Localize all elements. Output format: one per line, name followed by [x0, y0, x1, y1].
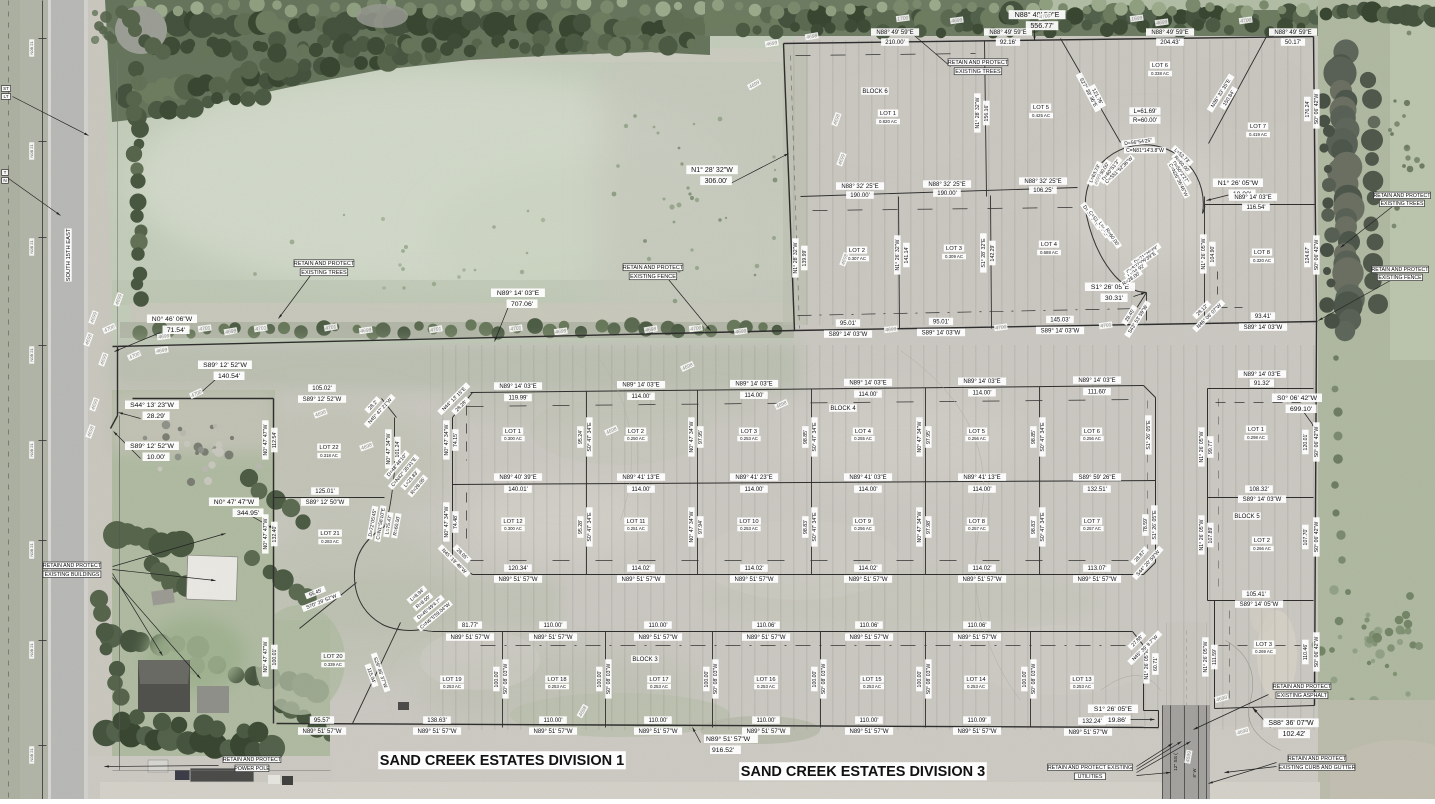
svg-text:LT: LT	[3, 94, 8, 99]
svg-text:125.01': 125.01'	[315, 489, 335, 495]
svg-text:LOT 5: LOT 5	[1033, 105, 1049, 111]
svg-text:N89° 51' 57"W: N89° 51' 57"W	[962, 577, 1001, 583]
svg-text:114.00': 114.00'	[858, 487, 877, 493]
svg-text:N89° 51' 57"W: N89° 51' 57"W	[450, 635, 489, 641]
svg-text:EXISTING FENCE: EXISTING FENCE	[1378, 275, 1422, 281]
svg-text:N0° 47' 34"W: N0° 47' 34"W	[917, 421, 923, 452]
svg-text:S89° 14' 03"W: S89° 14' 03"W	[1041, 328, 1080, 334]
svg-text:74.15': 74.15'	[453, 433, 459, 447]
svg-text:RETAIN AND PROTECT: RETAIN AND PROTECT	[623, 265, 684, 271]
svg-text:N89° 51' 57"W: N89° 51' 57"W	[302, 729, 341, 735]
svg-text:N1° 28' 32"W: N1° 28' 32"W	[793, 242, 799, 273]
svg-text:114.00': 114.00'	[744, 487, 763, 493]
svg-text:N0° 47' 47"W: N0° 47' 47"W	[263, 424, 269, 455]
svg-text:0.307 AC: 0.307 AC	[848, 256, 866, 261]
svg-text:138.63': 138.63'	[427, 718, 447, 724]
svg-text:124.67': 124.67'	[1305, 247, 1311, 264]
svg-text:EXISTING TREES: EXISTING TREES	[1381, 201, 1424, 207]
svg-text:RETAIN AND PROTECT: RETAIN AND PROTECT	[1374, 193, 1432, 199]
svg-text:110.06': 110.06'	[967, 623, 986, 629]
svg-text:LOT 6: LOT 6	[1152, 63, 1168, 69]
svg-text:0.253 AC: 0.253 AC	[1073, 684, 1091, 689]
svg-text:176.24': 176.24'	[1305, 101, 1311, 118]
svg-text:0.298 AC: 0.298 AC	[1247, 435, 1265, 440]
svg-text:102.42': 102.42'	[1283, 731, 1306, 738]
svg-text:LOT 11: LOT 11	[627, 519, 646, 525]
svg-text:LOT 13: LOT 13	[1072, 677, 1091, 683]
svg-text:LOT 14: LOT 14	[966, 677, 986, 683]
svg-text:N89° 14' 03"E: N89° 14' 03"E	[1078, 378, 1115, 384]
svg-text:S0° 08' 03"W: S0° 08' 03"W	[713, 664, 719, 695]
svg-text:LOT 22: LOT 22	[319, 445, 338, 451]
svg-text:POWER POLE: POWER POLE	[234, 766, 270, 772]
svg-text:N88° 49' 59"E: N88° 49' 59"E	[1151, 30, 1188, 36]
svg-text:0.256 AC: 0.256 AC	[968, 436, 986, 441]
svg-text:N0° 47' 47"W: N0° 47' 47"W	[214, 498, 255, 506]
svg-text:0.269 AC: 0.269 AC	[1255, 649, 1273, 654]
svg-text:0.256 AC: 0.256 AC	[854, 526, 872, 531]
svg-text:141.14': 141.14'	[904, 247, 910, 264]
svg-text:0.320 AC: 0.320 AC	[1253, 258, 1271, 263]
svg-text:210.00': 210.00'	[885, 40, 905, 46]
svg-text:EXISTING CURB AND GUTTER: EXISTING CURB AND GUTTER	[1279, 765, 1356, 771]
svg-text:N1° 26' 05"W: N1° 26' 05"W	[1201, 238, 1207, 269]
svg-text:N88° 49' 59"E: N88° 49' 59"E	[1274, 30, 1311, 36]
svg-text:N0° 47' 34"W: N0° 47' 34"W	[689, 421, 695, 452]
svg-text:N89° 41' 13"E: N89° 41' 13"E	[963, 475, 1000, 481]
svg-text:50.17': 50.17'	[1285, 40, 1301, 46]
svg-text:8" W: 8" W	[1192, 768, 1197, 777]
svg-text:30.31': 30.31'	[1105, 295, 1123, 302]
svg-text:LOT 10: LOT 10	[739, 519, 758, 525]
svg-text:556.77': 556.77'	[1030, 21, 1054, 30]
svg-text:114.00': 114.00'	[631, 487, 650, 493]
svg-text:T: T	[4, 170, 7, 175]
svg-text:111.59': 111.59'	[1212, 649, 1218, 665]
svg-text:110.00': 110.00'	[756, 718, 775, 724]
svg-text:BLOCK 5: BLOCK 5	[1234, 514, 1260, 520]
svg-text:110.00': 110.00'	[543, 718, 562, 724]
svg-text:91.32': 91.32'	[1254, 381, 1270, 387]
svg-text:LOT 21: LOT 21	[320, 531, 339, 537]
svg-text:74.48': 74.48'	[453, 515, 459, 529]
svg-text:110.46': 110.46'	[1303, 644, 1309, 660]
svg-text:RETAIN AND PROTECT: RETAIN AND PROTECT	[223, 757, 282, 763]
svg-text:S44° 13' 23"W: S44° 13' 23"W	[130, 401, 174, 409]
svg-text:S89° 14' 05"W: S89° 14' 05"W	[1240, 602, 1279, 608]
svg-text:N89° 51' 57"W: N89° 51' 57"W	[849, 729, 888, 735]
svg-text:RETAIN AND PROTECT: RETAIN AND PROTECT	[1273, 684, 1332, 690]
svg-text:N89° 51' 57"W: N89° 51' 57"W	[849, 635, 888, 641]
svg-text:N0B 21: N0B 21	[29, 41, 34, 55]
svg-text:LOT 1: LOT 1	[1248, 427, 1264, 433]
svg-text:0.300 AC: 0.300 AC	[504, 526, 522, 531]
svg-text:S0° 08' 03"W: S0° 08' 03"W	[926, 664, 932, 695]
svg-text:RETAIN AND PROTECT: RETAIN AND PROTECT	[1288, 756, 1347, 762]
svg-text:190.00': 190.00'	[850, 193, 870, 199]
svg-text:344.95': 344.95'	[237, 510, 259, 517]
svg-text:95.28': 95.28'	[578, 520, 584, 534]
svg-text:S0° 08' 03"W: S0° 08' 03"W	[821, 664, 827, 695]
svg-text:N89° 14' 03"E: N89° 14' 03"E	[622, 383, 659, 389]
svg-text:ST: ST	[3, 86, 9, 91]
svg-text:LOT 6: LOT 6	[1084, 429, 1100, 435]
svg-text:S1° 26' 05"E: S1° 26' 05"E	[1094, 705, 1133, 713]
svg-text:S0° 08' 03"W: S0° 08' 03"W	[606, 664, 612, 695]
svg-text:N0B 21: N0B 21	[29, 543, 34, 557]
svg-text:S0° 47' 34"E: S0° 47' 34"E	[812, 422, 818, 452]
svg-text:140.01': 140.01'	[508, 487, 528, 493]
svg-text:0.253 AC: 0.253 AC	[548, 684, 566, 689]
svg-text:SAND CREEK ESTATES DIVISION 3: SAND CREEK ESTATES DIVISION 3	[741, 764, 985, 780]
svg-text:N0B 21: N0B 21	[29, 643, 34, 657]
svg-text:114.00': 114.00'	[631, 394, 650, 400]
svg-text:N89° 14' 03"E: N89° 14' 03"E	[963, 379, 1000, 385]
svg-text:S89° 12' 52"W: S89° 12' 52"W	[130, 442, 174, 450]
svg-text:114.00': 114.00'	[972, 487, 991, 493]
svg-text:L=61.69': L=61.69'	[1133, 109, 1156, 115]
svg-text:N89° 51' 57"W: N89° 51' 57"W	[746, 729, 785, 735]
svg-text:105.02': 105.02'	[312, 386, 332, 392]
svg-text:N1° 26' 32"W: N1° 26' 32"W	[895, 239, 901, 270]
svg-text:114.02': 114.02'	[972, 566, 991, 572]
svg-text:98.83': 98.83'	[803, 520, 809, 534]
svg-text:95.01': 95.01'	[933, 319, 949, 325]
svg-text:N89° 14' 03"E: N89° 14' 03"E	[735, 382, 772, 388]
svg-text:99.77': 99.77'	[1208, 440, 1214, 454]
svg-text:0.253 AC: 0.253 AC	[740, 526, 758, 531]
svg-text:S0° 06' 42"W: S0° 06' 42"W	[1314, 522, 1320, 553]
svg-text:0.253 AC: 0.253 AC	[757, 684, 775, 689]
svg-text:95.24': 95.24'	[578, 430, 584, 444]
svg-text:0.300 AC: 0.300 AC	[504, 436, 522, 441]
svg-text:0.253 AC: 0.253 AC	[650, 684, 668, 689]
svg-text:N88° 49' 59"E: N88° 49' 59"E	[876, 30, 913, 36]
svg-text:LOT 3: LOT 3	[1256, 642, 1272, 648]
svg-text:N0B 21: N0B 21	[29, 748, 34, 762]
svg-text:S0° 06' 42"W: S0° 06' 42"W	[1314, 240, 1320, 271]
svg-text:N0B 21: N0B 21	[29, 144, 34, 158]
svg-text:0.820 AC: 0.820 AC	[879, 119, 897, 124]
svg-text:N0° 47' 47"W: N0° 47' 47"W	[263, 641, 269, 672]
svg-text:93.41': 93.41'	[1255, 314, 1271, 320]
svg-text:699.10': 699.10'	[1290, 406, 1312, 413]
svg-text:RETAIN AND PROTECT: RETAIN AND PROTECT	[948, 60, 1009, 66]
svg-text:N1° 26' 05"W: N1° 26' 05"W	[1199, 431, 1205, 462]
svg-text:0.283 AC: 0.283 AC	[321, 539, 339, 544]
svg-text:N88° 32' 25"E: N88° 32' 25"E	[1024, 179, 1061, 185]
svg-text:N89° 51' 57"W: N89° 51' 57"W	[417, 729, 456, 735]
svg-text:104.90': 104.90'	[1210, 246, 1216, 263]
svg-text:916.52': 916.52'	[712, 747, 734, 754]
svg-text:114.00': 114.00'	[972, 391, 991, 397]
svg-text:LOT 7: LOT 7	[1250, 124, 1266, 130]
svg-text:SAND CREEK ESTATES DIVISION 1: SAND CREEK ESTATES DIVISION 1	[380, 753, 624, 769]
svg-text:RETAIN AND PROTECT: RETAIN AND PROTECT	[1372, 267, 1430, 273]
svg-text:S89° 14' 03"W: S89° 14' 03"W	[1243, 497, 1282, 503]
svg-text:707.06': 707.06'	[511, 301, 533, 308]
svg-text:92.16': 92.16'	[1000, 40, 1016, 46]
svg-text:LOT 8: LOT 8	[1254, 250, 1270, 256]
svg-text:106.25': 106.25'	[1033, 188, 1053, 194]
svg-text:LOT 4: LOT 4	[855, 429, 872, 435]
svg-text:BLOCK 4: BLOCK 4	[830, 406, 856, 412]
svg-text:N89° 51' 57"W: N89° 51' 57"W	[848, 577, 887, 583]
svg-text:100.00': 100.00'	[704, 671, 710, 688]
svg-text:LOT 15: LOT 15	[862, 677, 881, 683]
svg-text:S89° 12' 52"W: S89° 12' 52"W	[203, 361, 247, 369]
svg-text:0.309 AC: 0.309 AC	[945, 254, 963, 259]
svg-text:100.00': 100.00'	[597, 671, 603, 688]
svg-text:S0° 06' 42"W: S0° 06' 42"W	[1314, 637, 1320, 668]
svg-text:LOT 4: LOT 4	[1041, 242, 1058, 248]
svg-text:RETAIN AND PROTECT EXISTING: RETAIN AND PROTECT EXISTING	[1048, 765, 1132, 771]
svg-text:LOT 8: LOT 8	[969, 519, 985, 525]
svg-text:N89° 14' 03"E: N89° 14' 03"E	[497, 289, 540, 297]
svg-text:S1° 26' 05"E: S1° 26' 05"E	[1152, 510, 1158, 540]
svg-text:BLOCK 6: BLOCK 6	[862, 89, 888, 95]
svg-text:139.99': 139.99'	[802, 250, 808, 267]
svg-text:LOT 9: LOT 9	[855, 519, 871, 525]
svg-text:114.02': 114.02'	[744, 566, 763, 572]
svg-text:UTILITIES: UTILITIES	[1078, 774, 1103, 780]
svg-text:S1° 26' 05"E: S1° 26' 05"E	[1146, 420, 1152, 450]
svg-text:N89° 40' 39"E: N89° 40' 39"E	[499, 475, 536, 481]
svg-text:N0° 46' 06"W: N0° 46' 06"W	[152, 315, 193, 323]
svg-text:EXISTING BUILDINGS: EXISTING BUILDINGS	[45, 572, 100, 578]
svg-text:EXISTING TREES: EXISTING TREES	[301, 270, 347, 276]
svg-text:S0° 47' 34"E: S0° 47' 34"E	[587, 422, 593, 452]
svg-text:LOT 2: LOT 2	[628, 429, 644, 435]
svg-text:0.253 AC: 0.253 AC	[967, 684, 985, 689]
svg-text:N89° 51' 57"W: N89° 51' 57"W	[638, 635, 677, 641]
svg-text:0.339 AC: 0.339 AC	[324, 662, 342, 667]
svg-text:N89° 51' 57"W: N89° 51' 57"W	[638, 729, 677, 735]
svg-text:S0° 06' 42"W: S0° 06' 42"W	[1277, 394, 1318, 402]
svg-text:N89° 51' 57"W: N89° 51' 57"W	[746, 635, 785, 641]
svg-text:107.89': 107.89'	[1208, 527, 1214, 544]
svg-text:116.54': 116.54'	[1246, 205, 1265, 211]
svg-text:N89° 41' 23"E: N89° 41' 23"E	[735, 475, 772, 481]
svg-text:110.00': 110.00'	[648, 623, 667, 629]
svg-text:114.02': 114.02'	[631, 566, 650, 572]
svg-text:111.60': 111.60'	[1088, 390, 1107, 396]
svg-text:112.54': 112.54'	[272, 432, 278, 448]
svg-text:C=N81°14'3.8"W: C=N81°14'3.8"W	[1126, 148, 1164, 154]
svg-text:145.03': 145.03'	[1050, 317, 1070, 323]
svg-text:EXISTING FENCE: EXISTING FENCE	[630, 274, 676, 280]
svg-text:N0° 47' 34"W: N0° 47' 34"W	[689, 511, 695, 542]
svg-text:LOT 1: LOT 1	[505, 429, 521, 435]
svg-text:N89° 51' 57"W: N89° 51' 57"W	[1077, 577, 1116, 583]
svg-text:98.85': 98.85'	[1031, 430, 1037, 444]
svg-text:N: N	[3, 178, 6, 183]
svg-text:0.425 AC: 0.425 AC	[1032, 113, 1050, 118]
svg-text:LOT 17: LOT 17	[649, 677, 668, 683]
svg-text:RETAIN AND PROTECT: RETAIN AND PROTECT	[43, 563, 102, 569]
svg-text:110.06': 110.06'	[756, 623, 775, 629]
svg-text:0.255 AC: 0.255 AC	[854, 436, 872, 441]
svg-text:N89° 14' 03"E: N89° 14' 03"E	[849, 380, 886, 386]
svg-text:S0° 47' 34"E: S0° 47' 34"E	[1040, 422, 1046, 452]
svg-text:S89° 14' 03"W: S89° 14' 03"W	[829, 332, 868, 338]
svg-text:LOT 2: LOT 2	[1254, 538, 1270, 544]
svg-text:N1° 26' 05"W: N1° 26' 05"W	[1203, 641, 1209, 672]
svg-text:107.70': 107.70'	[1303, 529, 1309, 546]
svg-text:0.338 AC: 0.338 AC	[1151, 71, 1169, 76]
svg-text:140.54': 140.54'	[218, 373, 240, 380]
svg-text:S89° 12' 50"W: S89° 12' 50"W	[306, 500, 345, 506]
svg-text:190.00': 190.00'	[937, 191, 957, 197]
svg-text:R=60.00': R=60.00'	[1133, 118, 1157, 124]
svg-text:0.257 AC: 0.257 AC	[1083, 526, 1101, 531]
svg-text:98.83': 98.83'	[1031, 520, 1037, 534]
svg-text:119.99': 119.99'	[508, 396, 527, 402]
svg-text:LOT 20: LOT 20	[323, 654, 342, 660]
svg-text:110.09': 110.09'	[967, 718, 986, 724]
svg-text:EXISTING ASPHALT: EXISTING ASPHALT	[1277, 693, 1327, 699]
svg-text:100.00': 100.00'	[812, 671, 818, 688]
svg-text:N88° 32' 25"E: N88° 32' 25"E	[928, 182, 965, 188]
svg-text:SOUTH 15TH EAST: SOUTH 15TH EAST	[66, 228, 72, 281]
svg-text:97.98': 97.98'	[926, 520, 932, 534]
svg-text:N0B 21: N0B 21	[29, 348, 34, 362]
svg-text:0.253 AC: 0.253 AC	[863, 684, 881, 689]
svg-text:S88° 36' 07"W: S88° 36' 07"W	[1268, 719, 1314, 727]
svg-text:97.95': 97.95'	[926, 430, 932, 444]
svg-text:LOT 12: LOT 12	[503, 519, 522, 525]
svg-text:N89° 51' 57"W: N89° 51' 57"W	[498, 577, 537, 583]
svg-text:N0° 47' 34"W: N0° 47' 34"W	[444, 424, 450, 455]
svg-text:19.86': 19.86'	[1108, 717, 1126, 724]
svg-text:LOT 19: LOT 19	[442, 677, 461, 683]
svg-text:N89° 14' 03"E: N89° 14' 03"E	[499, 384, 536, 390]
svg-text:110.06': 110.06'	[859, 623, 878, 629]
svg-text:156.16': 156.16'	[984, 105, 990, 122]
svg-text:S0° 06' 42"W: S0° 06' 42"W	[1314, 427, 1320, 458]
svg-text:S0° 06' 42"W: S0° 06' 42"W	[1314, 94, 1320, 125]
svg-text:120.01': 120.01'	[1303, 434, 1309, 451]
svg-text:LOT 3: LOT 3	[946, 246, 962, 252]
svg-text:LOT 18: LOT 18	[547, 677, 566, 683]
svg-text:132.51': 132.51'	[1087, 487, 1107, 493]
svg-text:N1° 26' 05"W: N1° 26' 05"W	[1218, 179, 1259, 187]
svg-text:LOT 5: LOT 5	[969, 429, 985, 435]
svg-text:95.57': 95.57'	[314, 718, 330, 724]
svg-text:LOT 3: LOT 3	[741, 429, 757, 435]
svg-text:100.00': 100.00'	[1022, 671, 1028, 688]
svg-text:N1° 28' 32"W: N1° 28' 32"W	[691, 166, 733, 174]
svg-text:N0° 47' 34"W: N0° 47' 34"W	[444, 506, 450, 537]
svg-text:114.00': 114.00'	[858, 392, 877, 398]
svg-text:306.00': 306.00'	[705, 178, 728, 185]
svg-text:0.318 AC: 0.318 AC	[320, 453, 338, 458]
svg-text:N89° 51' 57"W: N89° 51' 57"W	[533, 635, 572, 641]
svg-text:0.688 AC: 0.688 AC	[1040, 250, 1058, 255]
svg-text:N89° 51' 57"W: N89° 51' 57"W	[957, 635, 996, 641]
svg-text:98.85': 98.85'	[803, 430, 809, 444]
svg-text:S89° 14' 03"W: S89° 14' 03"W	[922, 330, 961, 336]
svg-text:S0° 47' 34"E: S0° 47' 34"E	[587, 512, 593, 542]
svg-text:LOT 1: LOT 1	[880, 111, 896, 117]
svg-text:97.95': 97.95'	[698, 430, 704, 444]
svg-text:LOT 2: LOT 2	[849, 248, 865, 254]
svg-text:N88° 49' 59"E: N88° 49' 59"E	[989, 30, 1026, 36]
svg-text:N89° 51' 57"W: N89° 51' 57"W	[1068, 730, 1107, 736]
svg-text:81.77': 81.77'	[462, 623, 478, 629]
svg-text:N1° 26' 05"W: N1° 26' 05"W	[1199, 519, 1205, 550]
svg-text:0.251 AC: 0.251 AC	[627, 526, 645, 531]
svg-text:N89° 41' 13"E: N89° 41' 13"E	[622, 475, 659, 481]
svg-text:0.257 AC: 0.257 AC	[968, 526, 986, 531]
svg-text:N89° 14' 03"E: N89° 14' 03"E	[1234, 195, 1271, 201]
svg-text:N89° 41' 03"E: N89° 41' 03"E	[849, 475, 886, 481]
svg-text:105.41': 105.41'	[1246, 592, 1266, 598]
svg-text:132.40': 132.40'	[272, 526, 278, 543]
svg-text:N89° 51' 57"W: N89° 51' 57"W	[957, 729, 996, 735]
svg-text:RETAIN AND PROTECT: RETAIN AND PROTECT	[294, 261, 355, 267]
svg-text:110.00': 110.00'	[543, 623, 562, 629]
svg-text:0.256 AC: 0.256 AC	[1083, 436, 1101, 441]
svg-text:S1° 28' 32"E: S1° 28' 32"E	[981, 238, 987, 268]
svg-text:N89° 51' 57"W: N89° 51' 57"W	[621, 577, 660, 583]
svg-text:EXISTING TREES: EXISTING TREES	[955, 69, 1001, 75]
svg-text:132.24': 132.24'	[1082, 719, 1102, 725]
svg-text:108.32': 108.32'	[1249, 487, 1269, 493]
svg-text:100.01': 100.01'	[272, 649, 278, 666]
svg-text:12" SS (: 12" SS (	[1173, 753, 1179, 771]
svg-text:S0° 47' 34"E: S0° 47' 34"E	[812, 512, 818, 542]
svg-text:110.00': 110.00'	[648, 718, 667, 724]
svg-text:S89° 59' 26"E: S89° 59' 26"E	[1078, 475, 1115, 481]
svg-text:N0B 21: N0B 21	[29, 443, 34, 457]
svg-text:N1° 28' 32"W: N1° 28' 32"W	[975, 97, 981, 128]
svg-text:N0° 47' 34"W: N0° 47' 34"W	[917, 511, 923, 542]
svg-text:114.02': 114.02'	[858, 566, 877, 572]
svg-text:100.00': 100.00'	[917, 671, 923, 688]
svg-text:100.00': 100.00'	[494, 671, 500, 688]
svg-text:110.00': 110.00'	[859, 718, 878, 724]
svg-text:N88° 32' 25"E: N88° 32' 25"E	[841, 184, 878, 190]
svg-text:N88° 49' 59"E: N88° 49' 59"E	[1015, 10, 1060, 19]
svg-text:S0° 08' 03"W: S0° 08' 03"W	[503, 664, 509, 695]
svg-text:95.01': 95.01'	[840, 321, 856, 327]
svg-text:0.250 AC: 0.250 AC	[627, 436, 645, 441]
svg-text:LOT 16: LOT 16	[756, 677, 775, 683]
svg-text:N1° 26' 05"W: N1° 26' 05"W	[1144, 648, 1150, 679]
svg-text:N89° 51' 57"W: N89° 51' 57"W	[706, 735, 751, 743]
svg-text:N89° 51' 57"W: N89° 51' 57"W	[533, 729, 572, 735]
svg-text:114.00': 114.00'	[744, 393, 763, 399]
svg-text:97.94': 97.94'	[698, 520, 704, 534]
svg-text:113.07': 113.07'	[1087, 566, 1106, 572]
svg-text:S89° 14' 03"W: S89° 14' 03"W	[1244, 325, 1283, 331]
svg-text:60.71': 60.71'	[1153, 657, 1159, 671]
svg-text:N0B 21: N0B 21	[29, 240, 34, 254]
svg-text:0.253 AC: 0.253 AC	[740, 436, 758, 441]
svg-text:101.24': 101.24'	[395, 441, 401, 458]
svg-text:S89° 12' 52"W: S89° 12' 52"W	[303, 397, 342, 403]
svg-text:LOT 7: LOT 7	[1084, 519, 1100, 525]
svg-text:0.266 AC: 0.266 AC	[1253, 546, 1271, 551]
svg-text:28.29': 28.29'	[147, 413, 165, 420]
svg-text:N89° 14' 03"E: N89° 14' 03"E	[1243, 372, 1280, 378]
svg-text:S0° 47' 34"E: S0° 47' 34"E	[1040, 512, 1046, 542]
svg-text:BLOCK 3: BLOCK 3	[632, 657, 658, 663]
svg-text:120.34': 120.34'	[508, 566, 528, 572]
svg-text:N0° 47' 34"W: N0° 47' 34"W	[386, 433, 392, 464]
svg-text:0.419 AC: 0.419 AC	[1249, 132, 1267, 137]
